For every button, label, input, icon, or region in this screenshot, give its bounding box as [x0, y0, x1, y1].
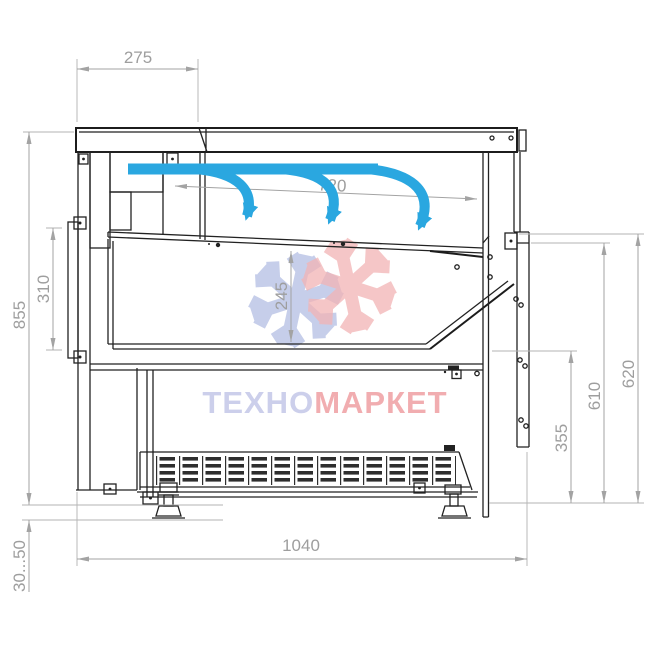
dim-label-30-50: 30...50 [10, 540, 29, 592]
right-foot [438, 506, 471, 518]
brand-prefix: ТЕХНО [202, 385, 314, 420]
front-panel [455, 232, 529, 447]
dimension-rear-panel-height: 310 [34, 228, 62, 350]
case-structure [68, 128, 529, 518]
dimension-canopy-depth: 275 [77, 48, 198, 122]
dimension-foot-range: 30...50 [10, 505, 223, 592]
dim-label-310: 310 [34, 275, 53, 303]
canopy [76, 128, 526, 152]
dim-label-855: 855 [10, 301, 29, 329]
rear-access-panel [68, 222, 78, 358]
display-case-cross-section: ТЕХНОМАРКЕТ [0, 0, 650, 650]
dim-label-275: 275 [124, 48, 152, 67]
dim-label-610: 610 [585, 382, 604, 410]
dimension-rear-height: 855 [10, 132, 74, 505]
adjustable-feet [104, 483, 471, 518]
front-glass [483, 152, 520, 517]
dim-label-1040: 1040 [282, 536, 320, 555]
dim-label-620: 620 [619, 360, 638, 388]
airflow-arrow-3 [368, 169, 425, 226]
watermark: ТЕХНОМАРКЕТ [202, 231, 447, 420]
airflow-arrow-1 [196, 169, 249, 216]
dimension-front-height: 620 [519, 234, 644, 503]
dim-label-245: 245 [272, 282, 291, 310]
left-foot [152, 506, 185, 518]
louver-slats [156, 456, 456, 485]
airflow-arrows [128, 169, 425, 226]
rear-wall [68, 152, 137, 490]
dim-label-355: 355 [552, 424, 571, 452]
brand-watermark: ТЕХНОМАРКЕТ [202, 385, 447, 420]
technical-drawing-canvas: ТЕХНОМАРКЕТ [0, 0, 650, 650]
brand-suffix: МАРКЕТ [314, 385, 447, 420]
